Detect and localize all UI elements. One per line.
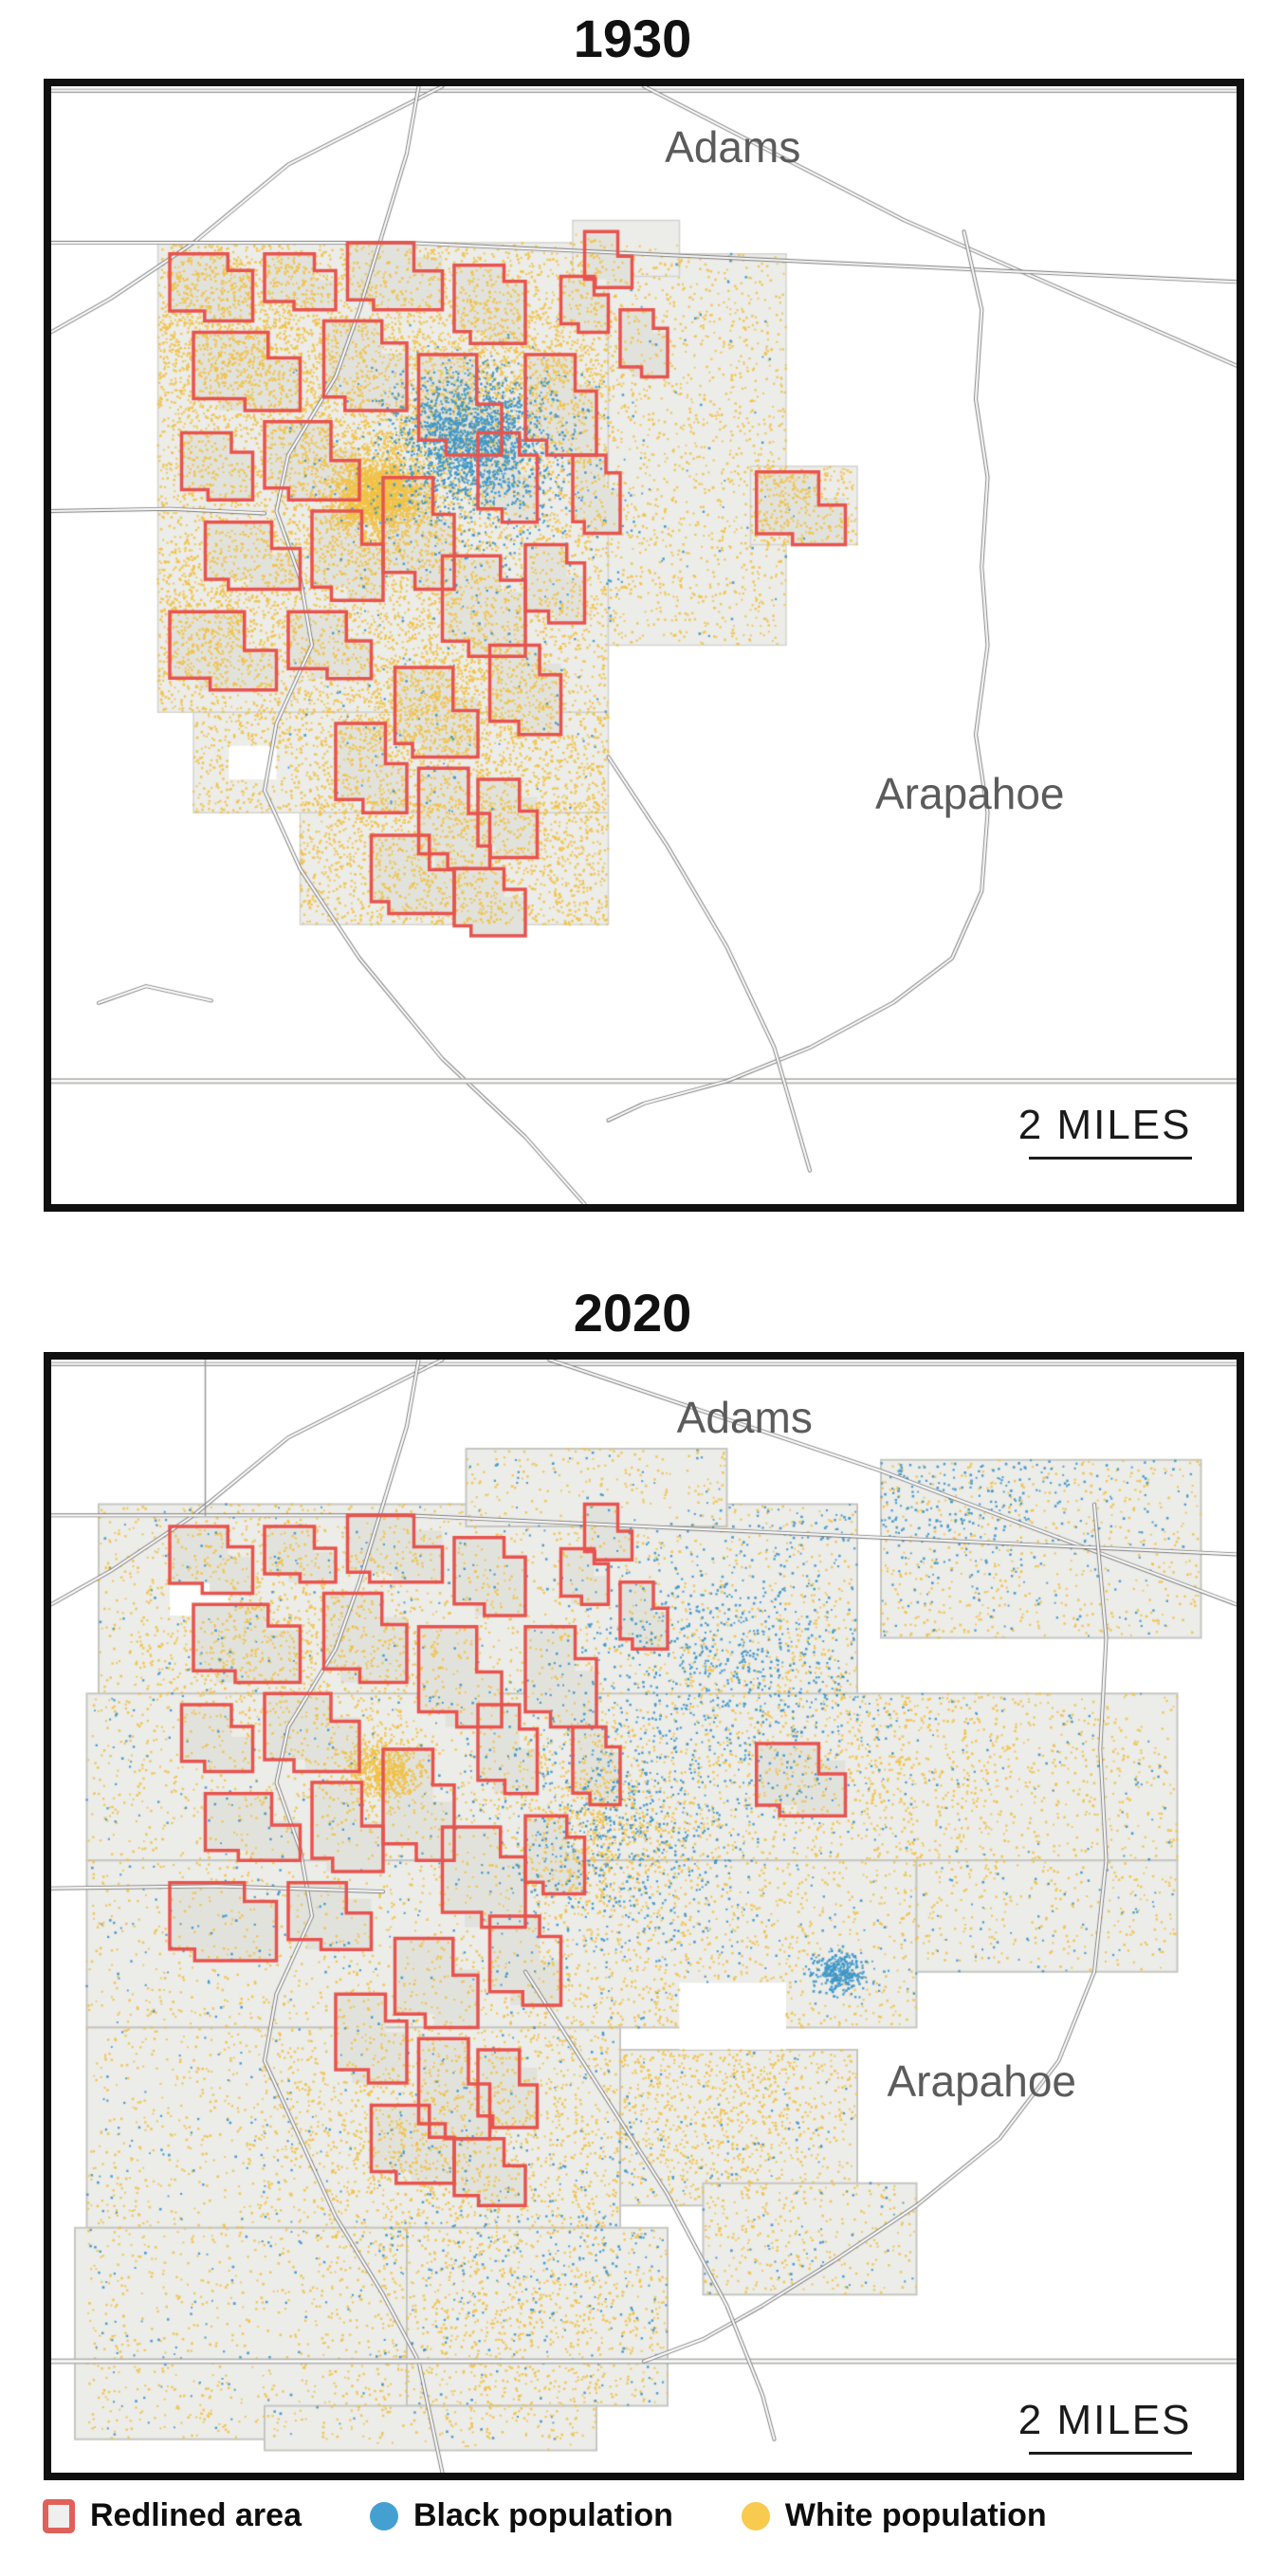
scale-text-1930: 2 MILES <box>1018 1102 1192 1149</box>
scale-line-2020 <box>1029 2452 1192 2455</box>
legend-item-white-population: White population <box>742 2497 1047 2534</box>
legend: Redlined area Black population White pop… <box>43 2497 1047 2534</box>
county-label-arapahoe-2020: Arapahoe <box>888 2055 1077 2107</box>
white-population-dot-icon <box>742 2502 770 2530</box>
redlined-area-swatch-icon <box>43 2499 75 2533</box>
black-population-dot-icon <box>370 2502 398 2530</box>
legend-item-redlined-area: Redlined area <box>43 2497 302 2534</box>
map-panel-1930: Adams Arapahoe 2 MILES <box>44 79 1244 1212</box>
map-title-2020: 2020 <box>0 1282 1265 1343</box>
county-label-adams-2020: Adams <box>677 1392 813 1443</box>
map-panel-2020: Adams Arapahoe 2 MILES <box>44 1352 1244 2480</box>
map-title-1930: 1930 <box>0 8 1265 69</box>
scale-text-2020: 2 MILES <box>1018 2397 1192 2444</box>
scale-bar-2020: 2 MILES <box>1018 2397 1192 2455</box>
legend-label-redlined-area: Redlined area <box>90 2497 302 2534</box>
scale-line-1930 <box>1029 1157 1192 1160</box>
legend-item-black-population: Black population <box>370 2497 673 2534</box>
legend-label-white-population: White population <box>785 2497 1047 2534</box>
map-canvas-1930 <box>51 86 1237 1204</box>
map-canvas-2020 <box>51 1360 1237 2473</box>
county-label-arapahoe-1930: Arapahoe <box>875 768 1065 819</box>
county-label-adams-1930: Adams <box>665 121 800 173</box>
scale-bar-1930: 2 MILES <box>1018 1102 1192 1160</box>
legend-label-black-population: Black population <box>413 2497 673 2534</box>
